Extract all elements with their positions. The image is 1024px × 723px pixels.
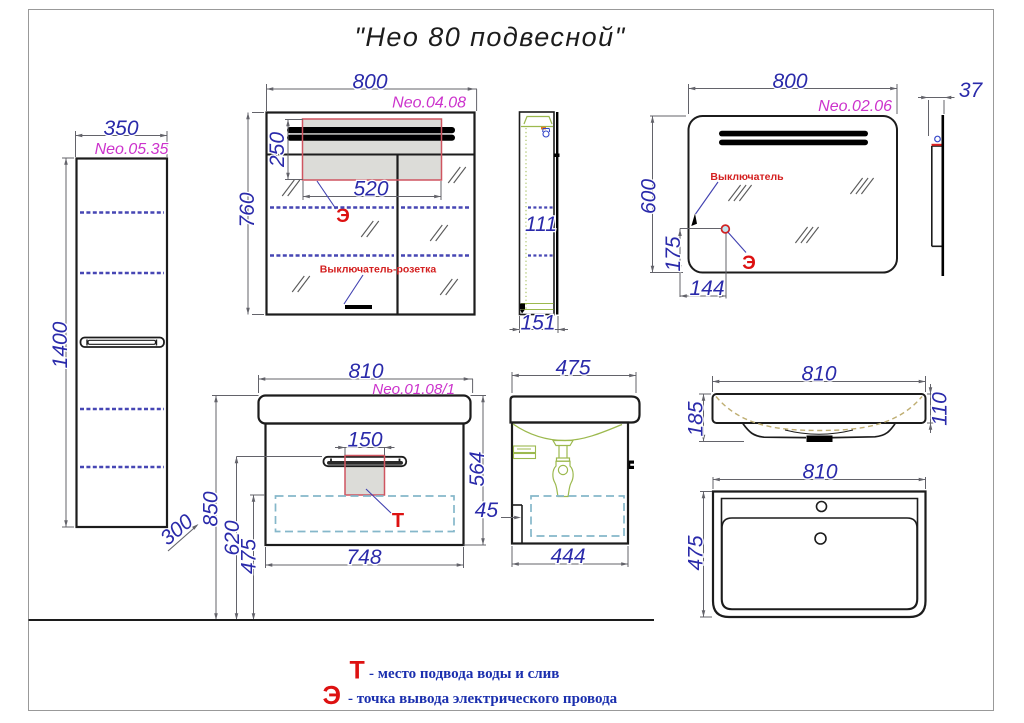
- svg-text:Выключатель-розетка: Выключатель-розетка: [320, 264, 437, 276]
- svg-text:850: 850: [200, 491, 223, 526]
- svg-text:151: 151: [520, 312, 555, 335]
- svg-text:Выключатель: Выключатель: [710, 171, 784, 183]
- svg-text:Э: Э: [336, 206, 350, 227]
- svg-text:110: 110: [929, 392, 952, 426]
- svg-text:37: 37: [959, 79, 984, 102]
- svg-text:- точка вывода электрического: - точка вывода электрического провода: [348, 691, 618, 707]
- svg-text:Neo.05.35: Neo.05.35: [95, 141, 169, 158]
- svg-text:144: 144: [689, 277, 724, 300]
- svg-text:600: 600: [638, 179, 661, 214]
- svg-text:475: 475: [685, 535, 708, 570]
- svg-text:175: 175: [662, 236, 685, 271]
- svg-text:Э: Э: [742, 253, 756, 274]
- svg-text:810: 810: [348, 360, 383, 383]
- svg-text:350: 350: [103, 117, 138, 140]
- svg-text:475: 475: [555, 357, 590, 380]
- svg-text:111: 111: [525, 213, 557, 236]
- svg-text:- место подвода воды и слив: - место подвода воды и слив: [369, 666, 559, 682]
- svg-text:150: 150: [347, 429, 382, 452]
- svg-text:444: 444: [550, 545, 585, 568]
- svg-text:185: 185: [685, 401, 708, 436]
- svg-text:45: 45: [475, 499, 499, 522]
- svg-text:760: 760: [236, 192, 259, 227]
- svg-text:250: 250: [266, 132, 289, 168]
- svg-text:475: 475: [238, 539, 261, 574]
- svg-text:Т: Т: [350, 657, 365, 685]
- svg-text:Neo.02.06: Neo.02.06: [818, 98, 892, 115]
- svg-text:"Нео 80 подвесной": "Нео 80 подвесной": [354, 22, 625, 52]
- svg-text:Neo.04.08: Neo.04.08: [392, 95, 466, 112]
- svg-text:810: 810: [802, 461, 837, 484]
- svg-text:Э: Э: [323, 680, 342, 710]
- svg-text:Т: Т: [392, 510, 404, 532]
- svg-text:800: 800: [772, 70, 807, 93]
- svg-text:520: 520: [353, 178, 388, 201]
- svg-text:1400: 1400: [49, 321, 72, 368]
- svg-text:564: 564: [466, 451, 489, 486]
- svg-text:748: 748: [346, 546, 381, 569]
- svg-text:800: 800: [352, 71, 387, 94]
- svg-text:810: 810: [801, 363, 836, 386]
